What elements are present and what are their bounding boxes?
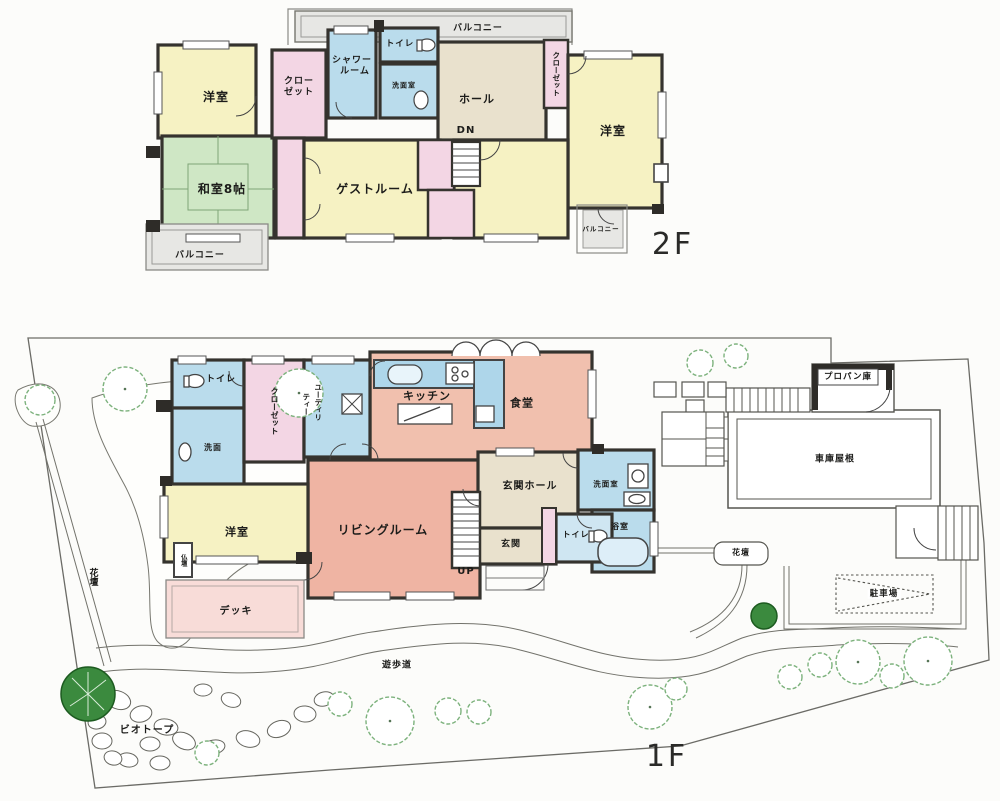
garage-landing-stairs xyxy=(896,506,978,560)
f1-bath-label: 浴室 xyxy=(611,523,629,531)
f1-parking-label: 駐車場 xyxy=(868,590,901,599)
f1-biotope-label: ビオトープ xyxy=(120,726,174,736)
f1-deck-label: デッキ xyxy=(220,607,253,617)
floor1-stairs xyxy=(452,492,480,568)
f2-shower-label-2: ルーム xyxy=(340,68,370,77)
f2-balcony-br-label: バルコニー xyxy=(582,226,619,233)
f1-flowerbed-left-label: 花壇 xyxy=(88,568,97,586)
f1-entrance-hall-label: 玄関ホール xyxy=(503,482,558,492)
f2-balcony-bl-label: バルコニー xyxy=(175,252,225,261)
f1-up-label: UP xyxy=(457,567,474,577)
f2-hall-label: ホール xyxy=(459,94,495,105)
f1-promenade-label: 遊歩道 xyxy=(382,662,412,671)
f2-guest-room-label: ゲストルーム xyxy=(336,183,414,195)
f1-washbasin-label: 洗面 xyxy=(204,444,222,452)
f2-washroom-label: 洗面室 xyxy=(392,83,416,90)
f1-propane-label: プロパン庫 xyxy=(824,373,872,382)
f2-dn-label: DN xyxy=(457,126,476,136)
floor-plan-sheet: バルコニー 洋室 クロー ゼット シャワー ルーム トイレ 洗面室 ホール DN… xyxy=(0,0,1000,801)
f2-closet-right-label: クローゼット xyxy=(552,52,560,97)
f2-shower-label-1: シャワー xyxy=(332,57,372,66)
f2-toilet-label: トイレ xyxy=(386,40,415,49)
f2-balcony-top-label: バルコニー xyxy=(453,25,503,34)
f1-toilet-b-label: トイレ xyxy=(563,531,590,539)
f1-entrance-label: 玄関 xyxy=(501,541,521,550)
floor1-bay-windows xyxy=(452,340,540,356)
f1-kitchen-label: キッチン xyxy=(403,391,451,402)
f2-closet-left-label-1: クロー xyxy=(284,78,314,87)
f1-closet-label: クローゼット xyxy=(270,387,278,435)
f2-tatami-room-label: 和室8帖 xyxy=(198,183,246,195)
floor2-stairs xyxy=(452,142,480,186)
f1-washroom-label: 洗面室 xyxy=(593,480,619,488)
f1-utility-label-2: ティー xyxy=(302,393,310,416)
f1-garage-roof-label: 車庫屋根 xyxy=(815,456,855,465)
f1-butsudan-label: 仏壇 xyxy=(180,554,187,567)
f1-toilet-label: トイレ xyxy=(206,376,236,385)
floor1-title: 1F xyxy=(646,742,688,772)
f1-dining-label: 食堂 xyxy=(510,398,534,409)
f1-bedroom-label: 洋室 xyxy=(225,527,249,538)
plan-drawing xyxy=(0,0,1000,801)
f1-living-label: リビングルーム xyxy=(338,524,429,536)
floor2-title: 2F xyxy=(652,230,694,260)
f1-flowerbed-right-label: 花壇 xyxy=(732,549,750,557)
f2-closet-left-label-2: ゼット xyxy=(284,89,314,98)
f1-utility-label-1: ユーティリ xyxy=(314,383,322,421)
f2-bedroom-left-label: 洋室 xyxy=(203,91,229,103)
f2-bedroom-right-label: 洋室 xyxy=(600,125,626,137)
